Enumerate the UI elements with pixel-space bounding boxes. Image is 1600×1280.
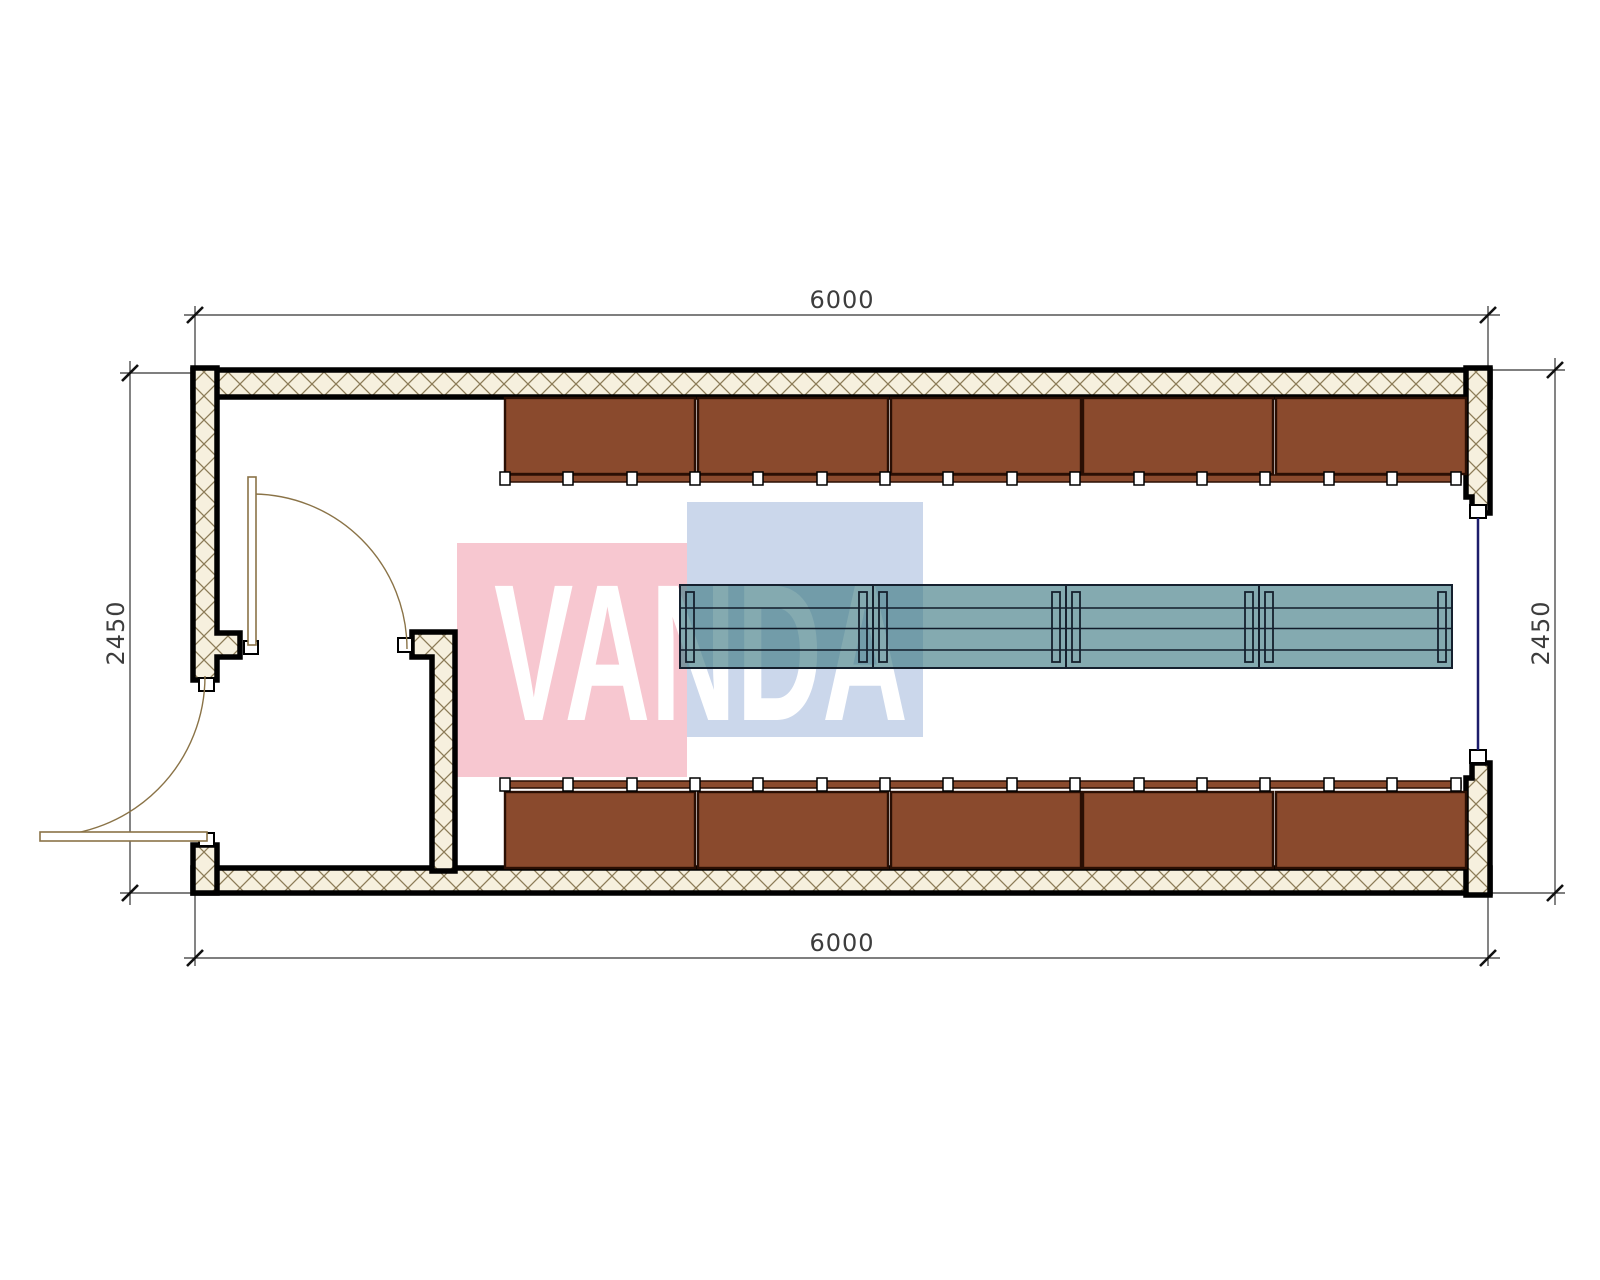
locker-unit [1276,398,1466,474]
dimension-bottom-label: 6000 [809,929,874,957]
window-stop-block [1470,750,1486,763]
table-segment [1066,585,1259,668]
wall-top [193,370,1490,397]
locker-unit [1083,398,1273,474]
locker-front-rail [509,781,1461,788]
door-swing-arc [45,676,205,836]
right-window [1470,505,1486,763]
dimension-top-label: 6000 [809,286,874,314]
locker-unit [698,398,888,474]
table-segment [1259,585,1452,668]
locker-row-bottom [500,778,1466,868]
floor-plan-canvas: VANDA 6000 6000 2450 2450 [0,0,1600,1280]
door-swing-arc [252,494,407,649]
interior-door [244,477,412,654]
locker-unit [1083,792,1273,868]
wall-right-upper [1466,368,1490,513]
window-stop-block [1470,505,1486,518]
dimension-left-lines [120,361,193,905]
locker-row-top [500,398,1466,485]
wall-right-lower [1466,763,1490,895]
door-stop-block [199,678,214,691]
dimension-bottom: 6000 [184,895,1500,966]
dimension-right-label: 2450 [1527,600,1555,665]
locker-unit [891,398,1081,474]
locker-front-rail [509,475,1461,482]
wall-left-upper [193,368,240,680]
wall-left-lower [193,845,217,893]
dimension-left-label: 2450 [102,600,130,665]
table-row [680,585,1452,668]
locker-unit [891,792,1081,868]
locker-unit [1276,792,1466,868]
dimension-top: 6000 [184,286,1500,368]
door-leaf [248,477,256,645]
door-stop-block [398,638,412,652]
locker-unit [505,398,695,474]
exterior-door [40,676,214,846]
dimension-top-lines [184,306,1500,368]
floor-plan-page: VANDA 6000 6000 2450 2450 [0,0,1600,1280]
door-leaf [40,832,207,841]
locker-unit [505,792,695,868]
wall-bottom [193,868,1490,893]
dimension-left: 2450 [102,361,193,905]
wall-partition [412,632,455,871]
table-segment [680,585,873,668]
locker-unit [698,792,888,868]
dimension-right: 2450 [1490,358,1565,905]
table-segment [873,585,1066,668]
